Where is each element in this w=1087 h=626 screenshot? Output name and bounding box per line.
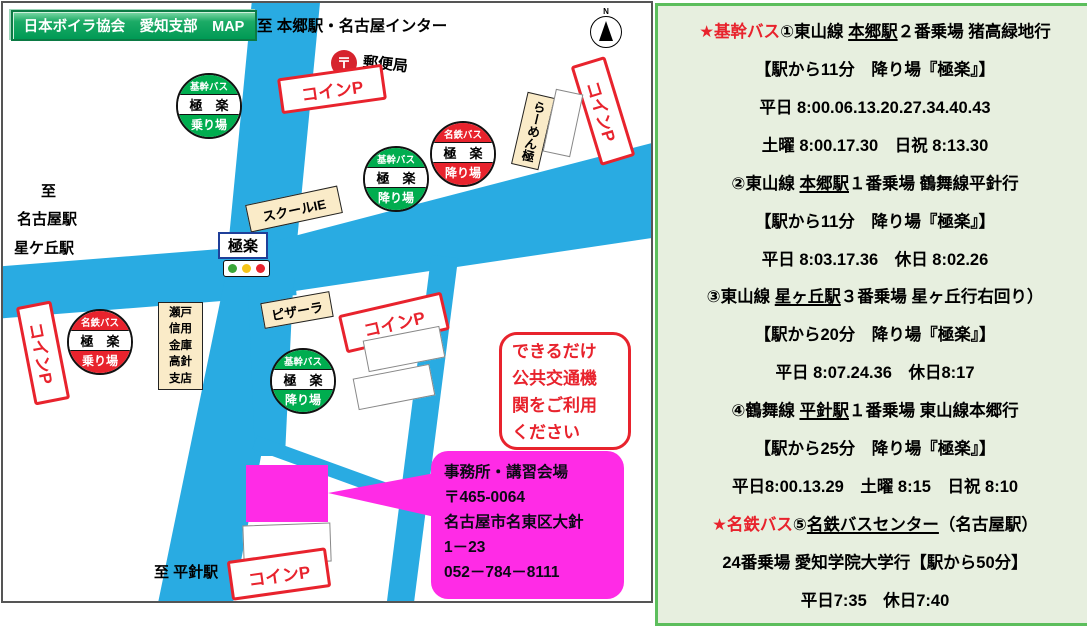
office-building xyxy=(246,465,328,522)
schedule-line-15: 24番乗場 愛知学院大学行【駅から50分】 xyxy=(662,549,1087,573)
office-info-box: 事務所・講習会場 〒465-0064 名古屋市名東区大針 1－23 052－78… xyxy=(431,451,624,599)
map-title: 日本ボイラ協会 愛知支部 MAP xyxy=(11,10,257,41)
schedule-line-12: 【駅から25分 降り場『極楽』】 xyxy=(662,435,1087,459)
schedule-line-9: 【駅から20分 降り場『極楽』】 xyxy=(662,321,1087,345)
schedule-line-2: 【駅から11分 降り場『極楽』】 xyxy=(662,56,1087,80)
direction-west-to: 至 xyxy=(41,180,56,201)
traffic-light-red xyxy=(256,264,265,273)
bus-stop-kikan-oriba-south: 基幹バス 極 楽 降り場 xyxy=(270,348,336,414)
bus-stop-meitetsu-oriba: 名鉄バス 極 楽 降り場 xyxy=(430,121,496,187)
schedule-line-13: 平日8:00.13.29 土曜 8:15 日祝 8:10 xyxy=(662,473,1087,497)
meitetsu-bus-header: ★名鉄バス xyxy=(712,516,793,534)
coin-parking-northeast: コインP xyxy=(571,56,636,166)
office-address-2: 1－23 xyxy=(444,535,624,560)
schedule-line-5: ②東山線 本郷駅１番乗場 鶴舞線平針行 xyxy=(662,170,1087,194)
bus-stop-name: 極 楽 xyxy=(178,94,240,115)
bus-operator: 基幹バス xyxy=(178,75,240,94)
traffic-light-icon xyxy=(223,260,270,277)
bus-schedule-panel: ★基幹バス①東山線 本郷駅２番乗場 猪高緑地行 【駅から11分 降り場『極楽』】… xyxy=(655,3,1087,626)
schedule-line-16: 平日7:35 休日7:40 xyxy=(662,587,1087,611)
compass-n-label: N xyxy=(589,8,623,16)
bus-stop-kikan-noriba: 基幹バス 極 楽 乗り場 xyxy=(176,73,242,139)
intersection-label: 極楽 xyxy=(218,232,268,259)
bus-stop-name: 極 楽 xyxy=(432,142,494,163)
traffic-light-green xyxy=(228,264,237,273)
compass-arrow-icon xyxy=(599,21,613,41)
bus-stop-kind: 乗り場 xyxy=(178,115,240,137)
schedule-line-1: ★基幹バス①東山線 本郷駅２番乗場 猪高緑地行 xyxy=(662,18,1087,42)
bus-stop-kind: 降り場 xyxy=(432,163,494,185)
traffic-light-yellow xyxy=(242,264,251,273)
public-transport-notice: できるだけ 公共交通機 関をご利用 ください xyxy=(499,332,631,450)
landmark-bank: 瀬戸 信用 金庫 高針 支店 xyxy=(158,302,203,390)
office-phone: 052－784－8111 xyxy=(444,560,624,585)
bus-stop-kind: 乗り場 xyxy=(69,351,131,373)
coin-parking-west: コインP xyxy=(16,300,70,405)
direction-south: 至 平針駅 xyxy=(154,561,218,582)
direction-west-nagoya: 名古屋駅 xyxy=(17,208,77,229)
compass: N xyxy=(589,8,623,48)
schedule-line-14: ★名鉄バス⑤名鉄バスセンター（名古屋駅） xyxy=(662,511,1087,535)
schedule-line-8: ③東山線 星ヶ丘駅３番乗場 星ヶ丘行右回り） xyxy=(662,283,1087,307)
office-title: 事務所・講習会場 xyxy=(444,460,624,485)
bus-stop-kikan-oriba-north: 基幹バス 極 楽 降り場 xyxy=(363,146,429,212)
schedule-line-7: 平日 8:03.17.36 休日 8:02.26 xyxy=(662,246,1087,270)
bus-operator: 基幹バス xyxy=(365,148,427,167)
schedule-line-4: 土曜 8:00.17.30 日祝 8:13.30 xyxy=(662,132,1087,156)
office-address-1: 名古屋市名東区大針 xyxy=(444,510,624,535)
direction-west-hoshigaoka: 星ケ丘駅 xyxy=(14,237,74,258)
bus-operator: 名鉄バス xyxy=(69,311,131,330)
bus-stop-name: 極 楽 xyxy=(365,167,427,188)
map-area: 日本ボイラ協会 愛知支部 MAP 至 本郷駅・名古屋インター 至 名古屋駅 星ケ… xyxy=(1,1,653,603)
direction-north: 至 本郷駅・名古屋インター xyxy=(257,14,447,36)
bus-stop-name: 極 楽 xyxy=(272,369,334,390)
schedule-line-10: 平日 8:07.24.36 休日8:17 xyxy=(662,359,1087,383)
schedule-line-11: ④鶴舞線 平針駅１番乗場 東山線本郷行 xyxy=(662,397,1087,421)
office-postal-code: 〒465-0064 xyxy=(444,485,624,510)
bus-stop-meitetsu-noriba: 名鉄バス 極 楽 乗り場 xyxy=(67,309,133,375)
compass-circle-icon xyxy=(590,16,622,48)
schedule-line-6: 【駅から11分 降り場『極楽』】 xyxy=(662,208,1087,232)
kikan-bus-header: ★基幹バス xyxy=(699,23,780,41)
bus-operator: 名鉄バス xyxy=(432,123,494,142)
schedule-line-3: 平日 8:00.06.13.20.27.34.40.43 xyxy=(662,94,1087,118)
bus-stop-name: 極 楽 xyxy=(69,330,131,351)
